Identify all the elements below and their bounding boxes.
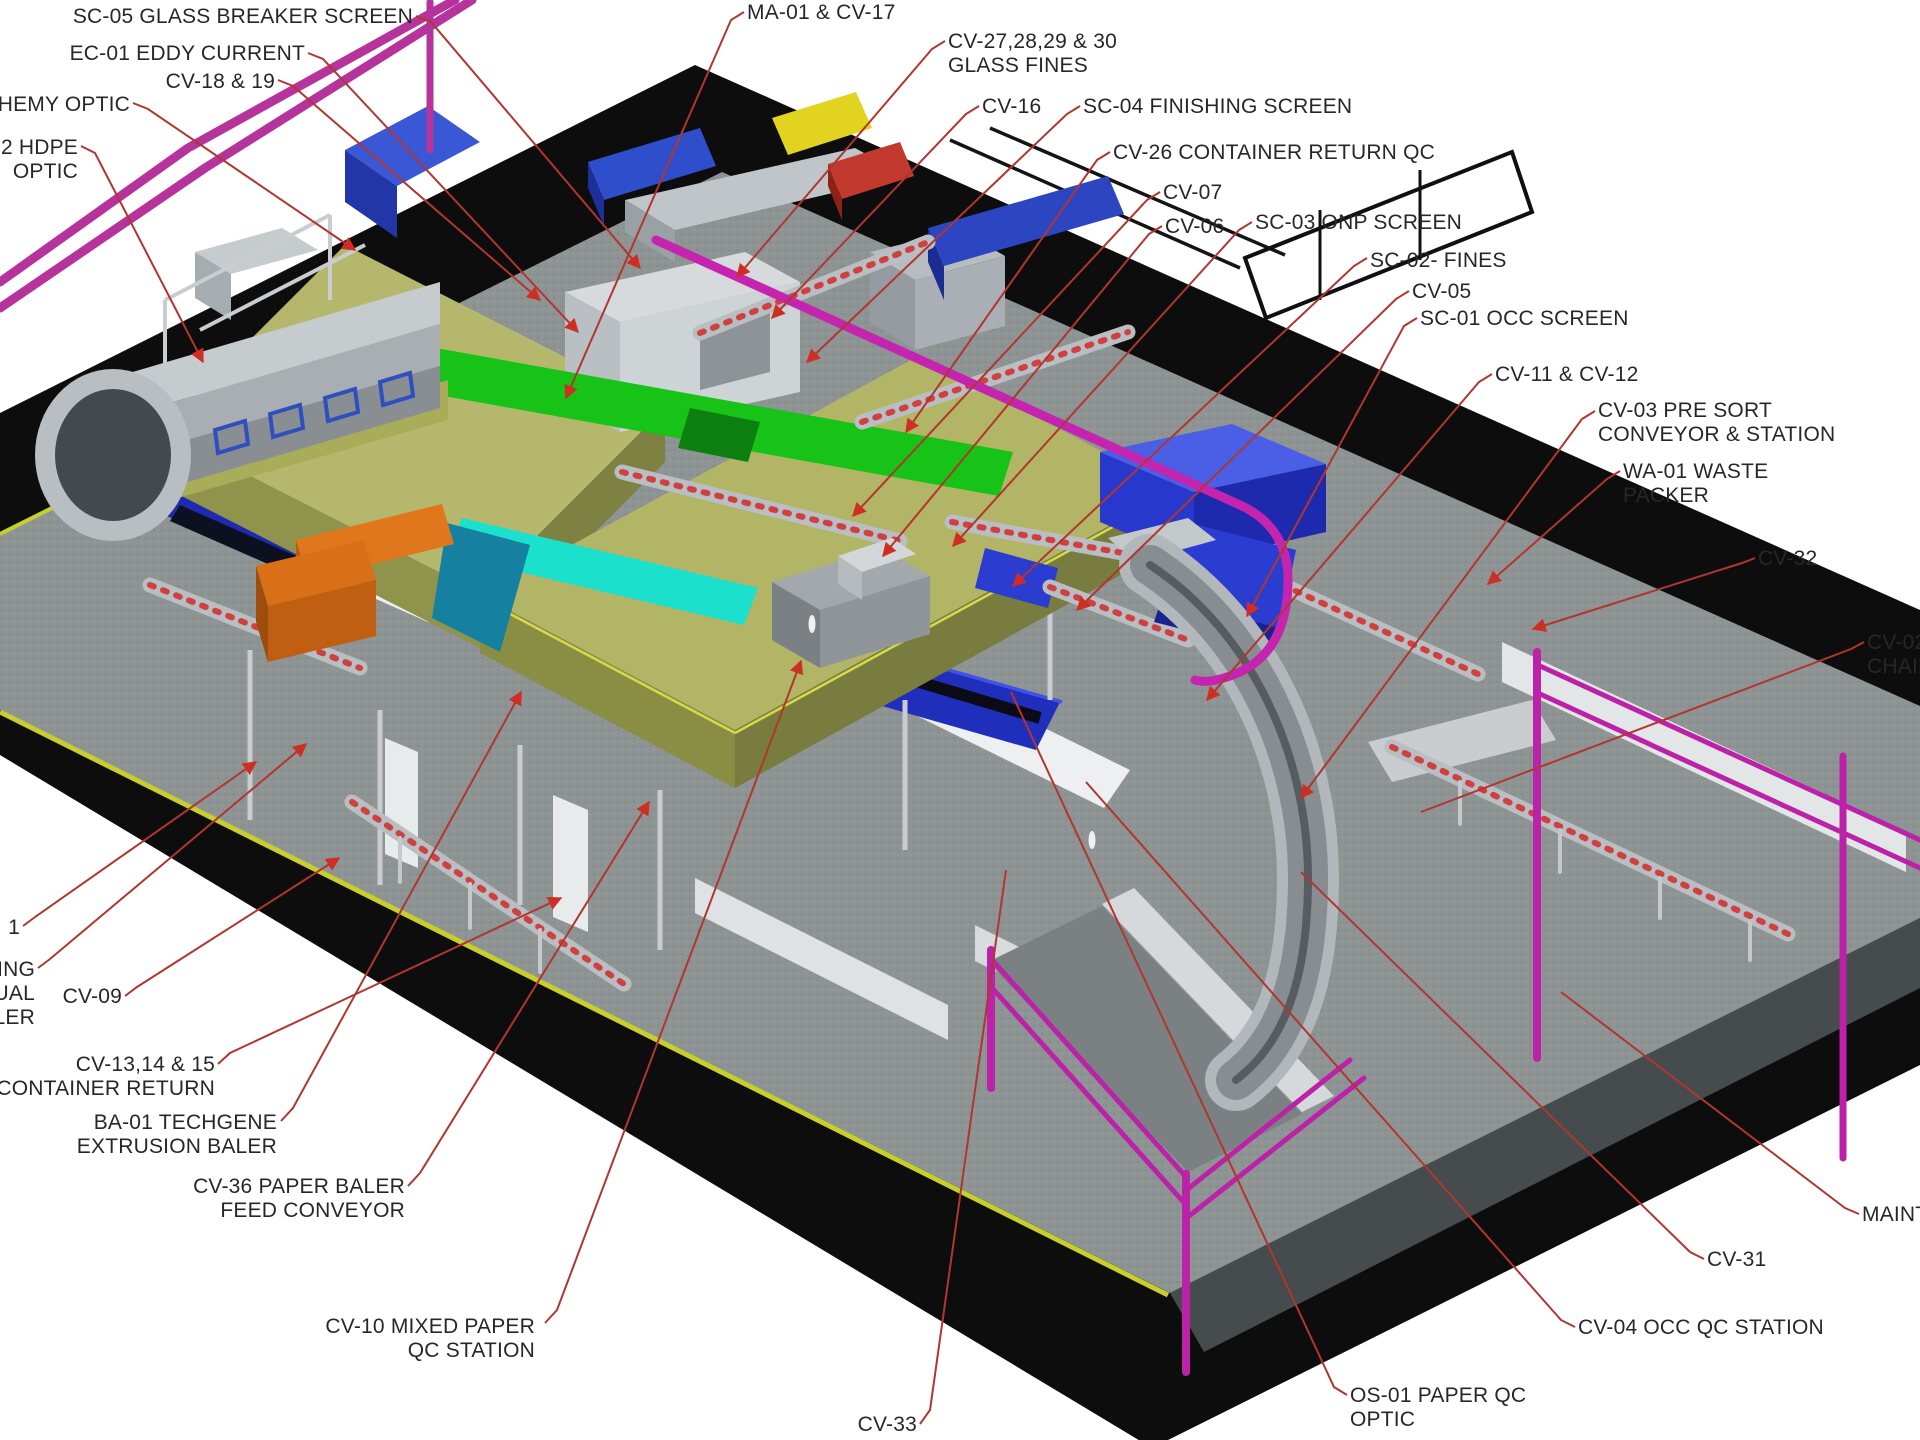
leader-ec01 xyxy=(308,53,578,332)
leader-edge-fragment-baler xyxy=(38,744,306,968)
leader-cv06 xyxy=(883,226,1162,556)
leader-sc04 xyxy=(807,106,1080,362)
leader-cv16 xyxy=(772,106,979,318)
leader-cv13-15 xyxy=(218,898,561,1064)
leader-cv31 xyxy=(1301,872,1704,1259)
leader-maintenance xyxy=(1561,992,1859,1214)
leader-alchemy-optic xyxy=(133,103,355,250)
leader-cv09 xyxy=(125,858,339,996)
leader-cv04 xyxy=(1086,782,1575,1327)
leader-cv32 xyxy=(1533,558,1755,629)
leader-cv27-30 xyxy=(737,41,945,277)
leader-cv26 xyxy=(906,152,1110,432)
leader-cv02-chain xyxy=(1421,642,1864,812)
leader-ma01-cv17 xyxy=(566,12,744,398)
leader-ba01 xyxy=(281,692,521,1121)
leader-cv18-19 xyxy=(278,80,540,300)
leader-cv05 xyxy=(1077,291,1409,610)
leader-cv36 xyxy=(408,802,649,1186)
leader-cv10 xyxy=(545,661,801,1323)
leader-wa01 xyxy=(1488,471,1620,584)
leader-cv03 xyxy=(1301,411,1595,798)
leader-cv07 xyxy=(853,192,1160,516)
leader-edge-fragment-1 xyxy=(23,762,256,926)
leader-lines-layer xyxy=(0,0,1920,1440)
leader-sc05 xyxy=(416,16,640,268)
leader-sc03 xyxy=(953,222,1252,546)
leader-os01 xyxy=(1011,692,1347,1395)
leader-hdpe-optic xyxy=(81,146,203,362)
facility-layout-rendering: SC-05 GLASS BREAKER SCREENEC-01 EDDY CUR… xyxy=(0,0,1920,1440)
leader-cv11-cv12 xyxy=(1207,374,1492,700)
leader-cv33 xyxy=(920,870,1006,1424)
